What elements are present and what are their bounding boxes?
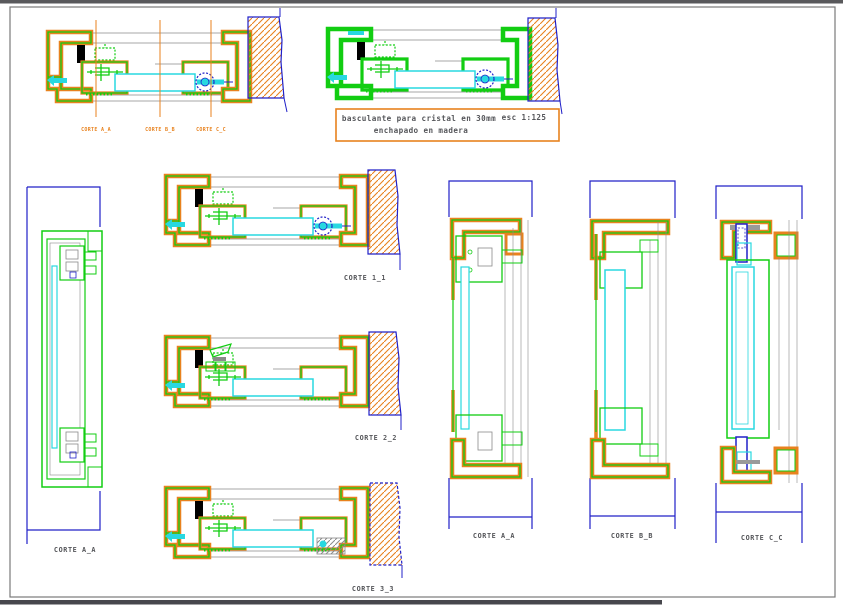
section-vertical-right-c: CORTE C_C [716,186,802,543]
wall-hatch [369,332,401,415]
detail-corte-1-1: CORTE 1_1 [165,170,400,282]
drawing-border [10,7,835,597]
detail-green-section [327,8,562,114]
glass-pane [732,267,754,429]
cad-canvas: CORTE A_A CORTE B_B CORTE C_C basculante… [0,0,843,605]
note-line1: basculante para cristal en 30mm [342,114,496,123]
bottom-bar [0,600,662,605]
section-vertical-right-b: CORTE B_B [590,181,675,540]
label-left-a: CORTE A_A [54,546,96,554]
glass-pane [461,267,469,429]
note-scale: esc 1:125 [502,113,547,122]
section-vertical-left-a: CORTE A_A [27,187,102,554]
detail-corte-2-2: CORTE 2_2 [165,332,401,442]
label-right-c: CORTE C_C [741,534,783,542]
wall-hatch [368,170,400,254]
section-vertical-right-a: CORTE A_A [449,181,532,540]
detail-corte-3-3: CORTE 3_3 [165,483,402,593]
glass-pane [52,266,57,448]
note-box: basculante para cristal en 30mm enchapad… [336,109,559,141]
cut-line-markers [96,20,211,117]
label-right-a: CORTE A_A [473,532,515,540]
wall-hatch [248,17,284,98]
label-right-b: CORTE B_B [611,532,653,540]
hinge-hardware-bottom [60,428,96,462]
detail-plan-cut-lines: CORTE A_A CORTE B_B CORTE C_C [47,8,287,133]
label-corte-1: CORTE 1_1 [344,274,386,282]
cut-label-c: CORTE C_C [196,127,226,133]
lock-bolt-bottom [736,437,747,475]
label-corte-3: CORTE 3_3 [352,585,394,593]
label-corte-2: CORTE 2_2 [355,434,397,442]
top-bar [0,0,843,4]
cad-drawing-sheet: CORTE A_A CORTE B_B CORTE C_C basculante… [0,0,843,605]
glass-pane [605,270,625,430]
wall-hatch [528,18,560,101]
cut-label-b: CORTE B_B [145,127,175,133]
note-line2: enchapado en madera [374,126,468,135]
wall-hatch-dashed [370,483,402,565]
cut-label-a: CORTE A_A [81,127,111,133]
